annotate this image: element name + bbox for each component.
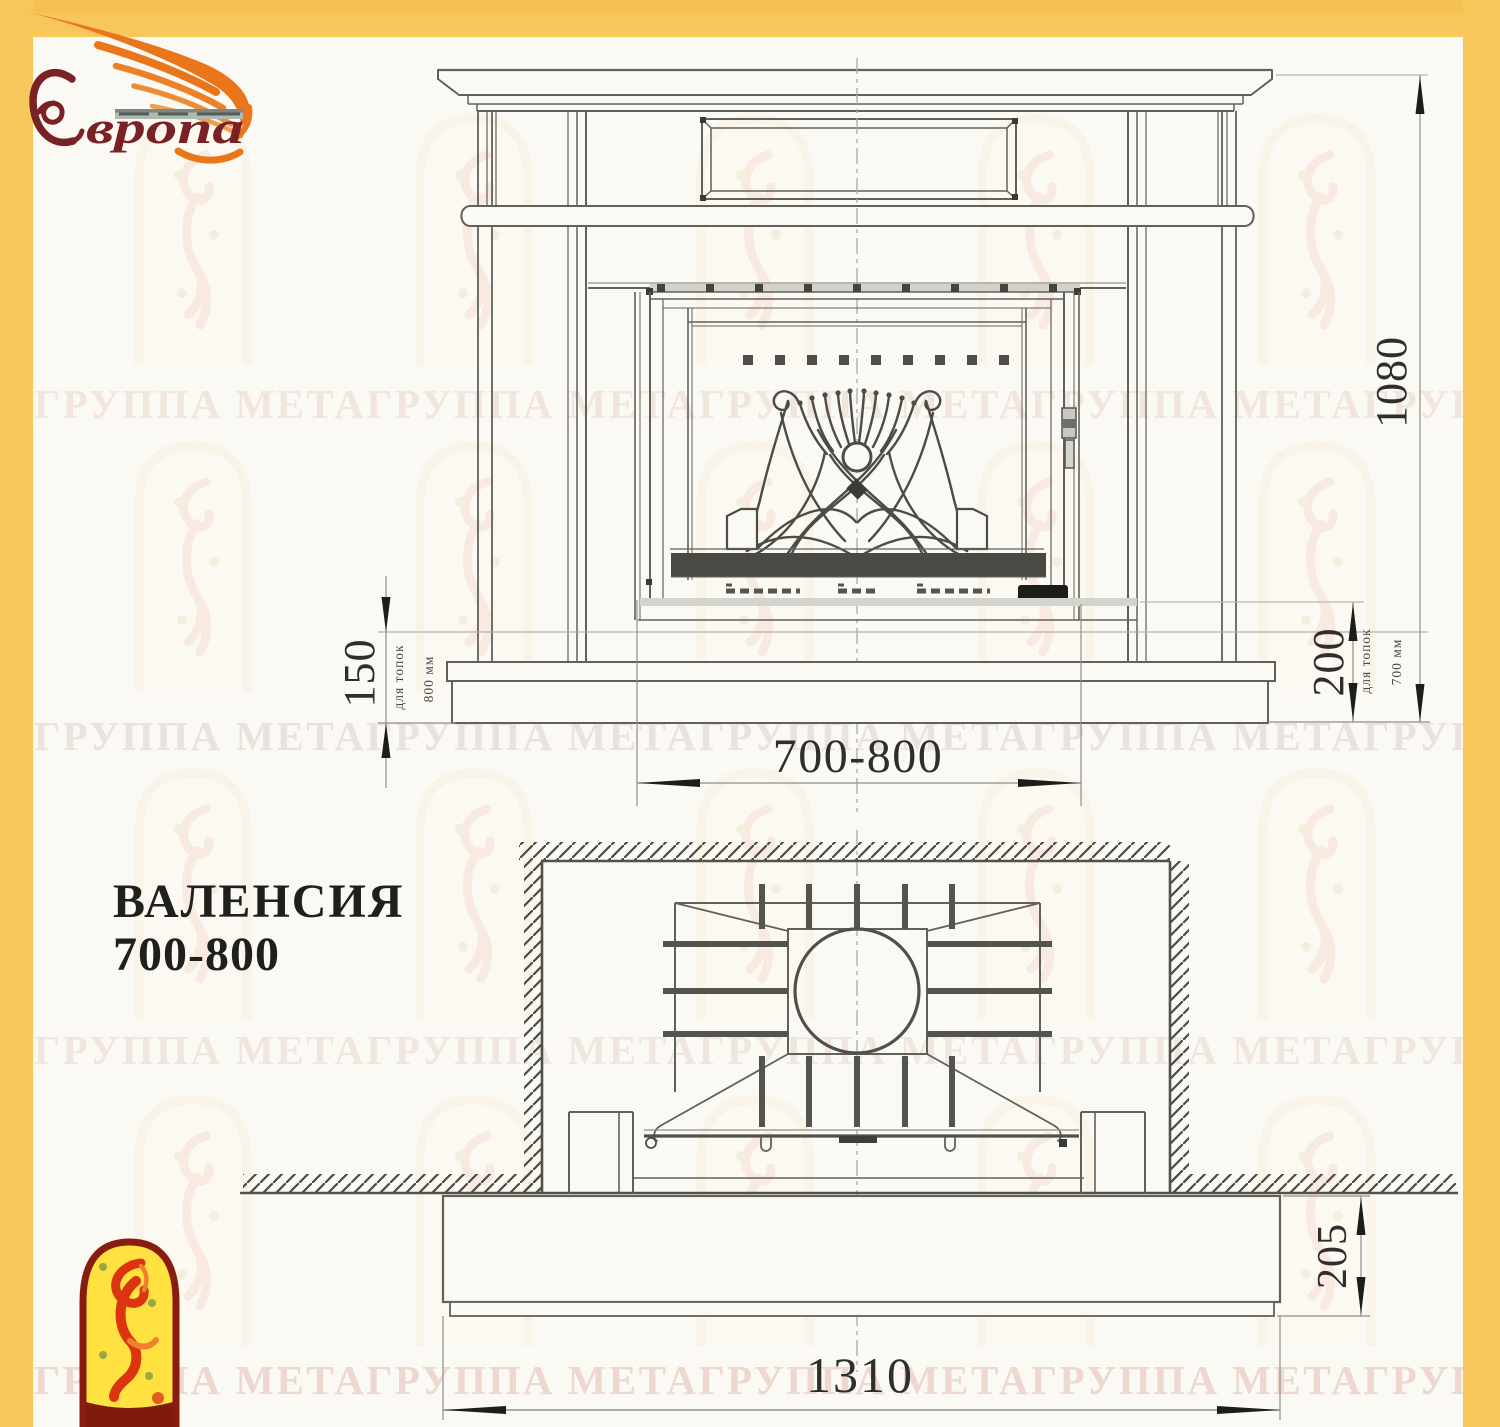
svg-text:для топок: для топок: [1358, 628, 1373, 693]
svg-text:вропа: вропа: [86, 102, 244, 153]
svg-text:ВАЛЕНСИЯ: ВАЛЕНСИЯ: [113, 875, 404, 928]
svg-text:205: 205: [1310, 1223, 1356, 1289]
svg-text:1080: 1080: [1367, 336, 1416, 428]
svg-text:ГРУППА МЕТАГРУППА МЕТАГРУППА М: ГРУППА МЕТАГРУППА МЕТАГРУППА МЕТАГРУППА …: [34, 381, 1500, 427]
svg-text:для топок: для топок: [391, 644, 406, 709]
svg-text:1310: 1310: [806, 1347, 914, 1403]
svg-text:700-800: 700-800: [113, 928, 280, 981]
svg-text:700-800: 700-800: [773, 730, 943, 783]
svg-text:150: 150: [335, 639, 384, 708]
svg-text:800 мм: 800 мм: [421, 656, 436, 703]
svg-text:700 мм: 700 мм: [1389, 639, 1404, 686]
svg-text:200: 200: [1304, 628, 1353, 697]
